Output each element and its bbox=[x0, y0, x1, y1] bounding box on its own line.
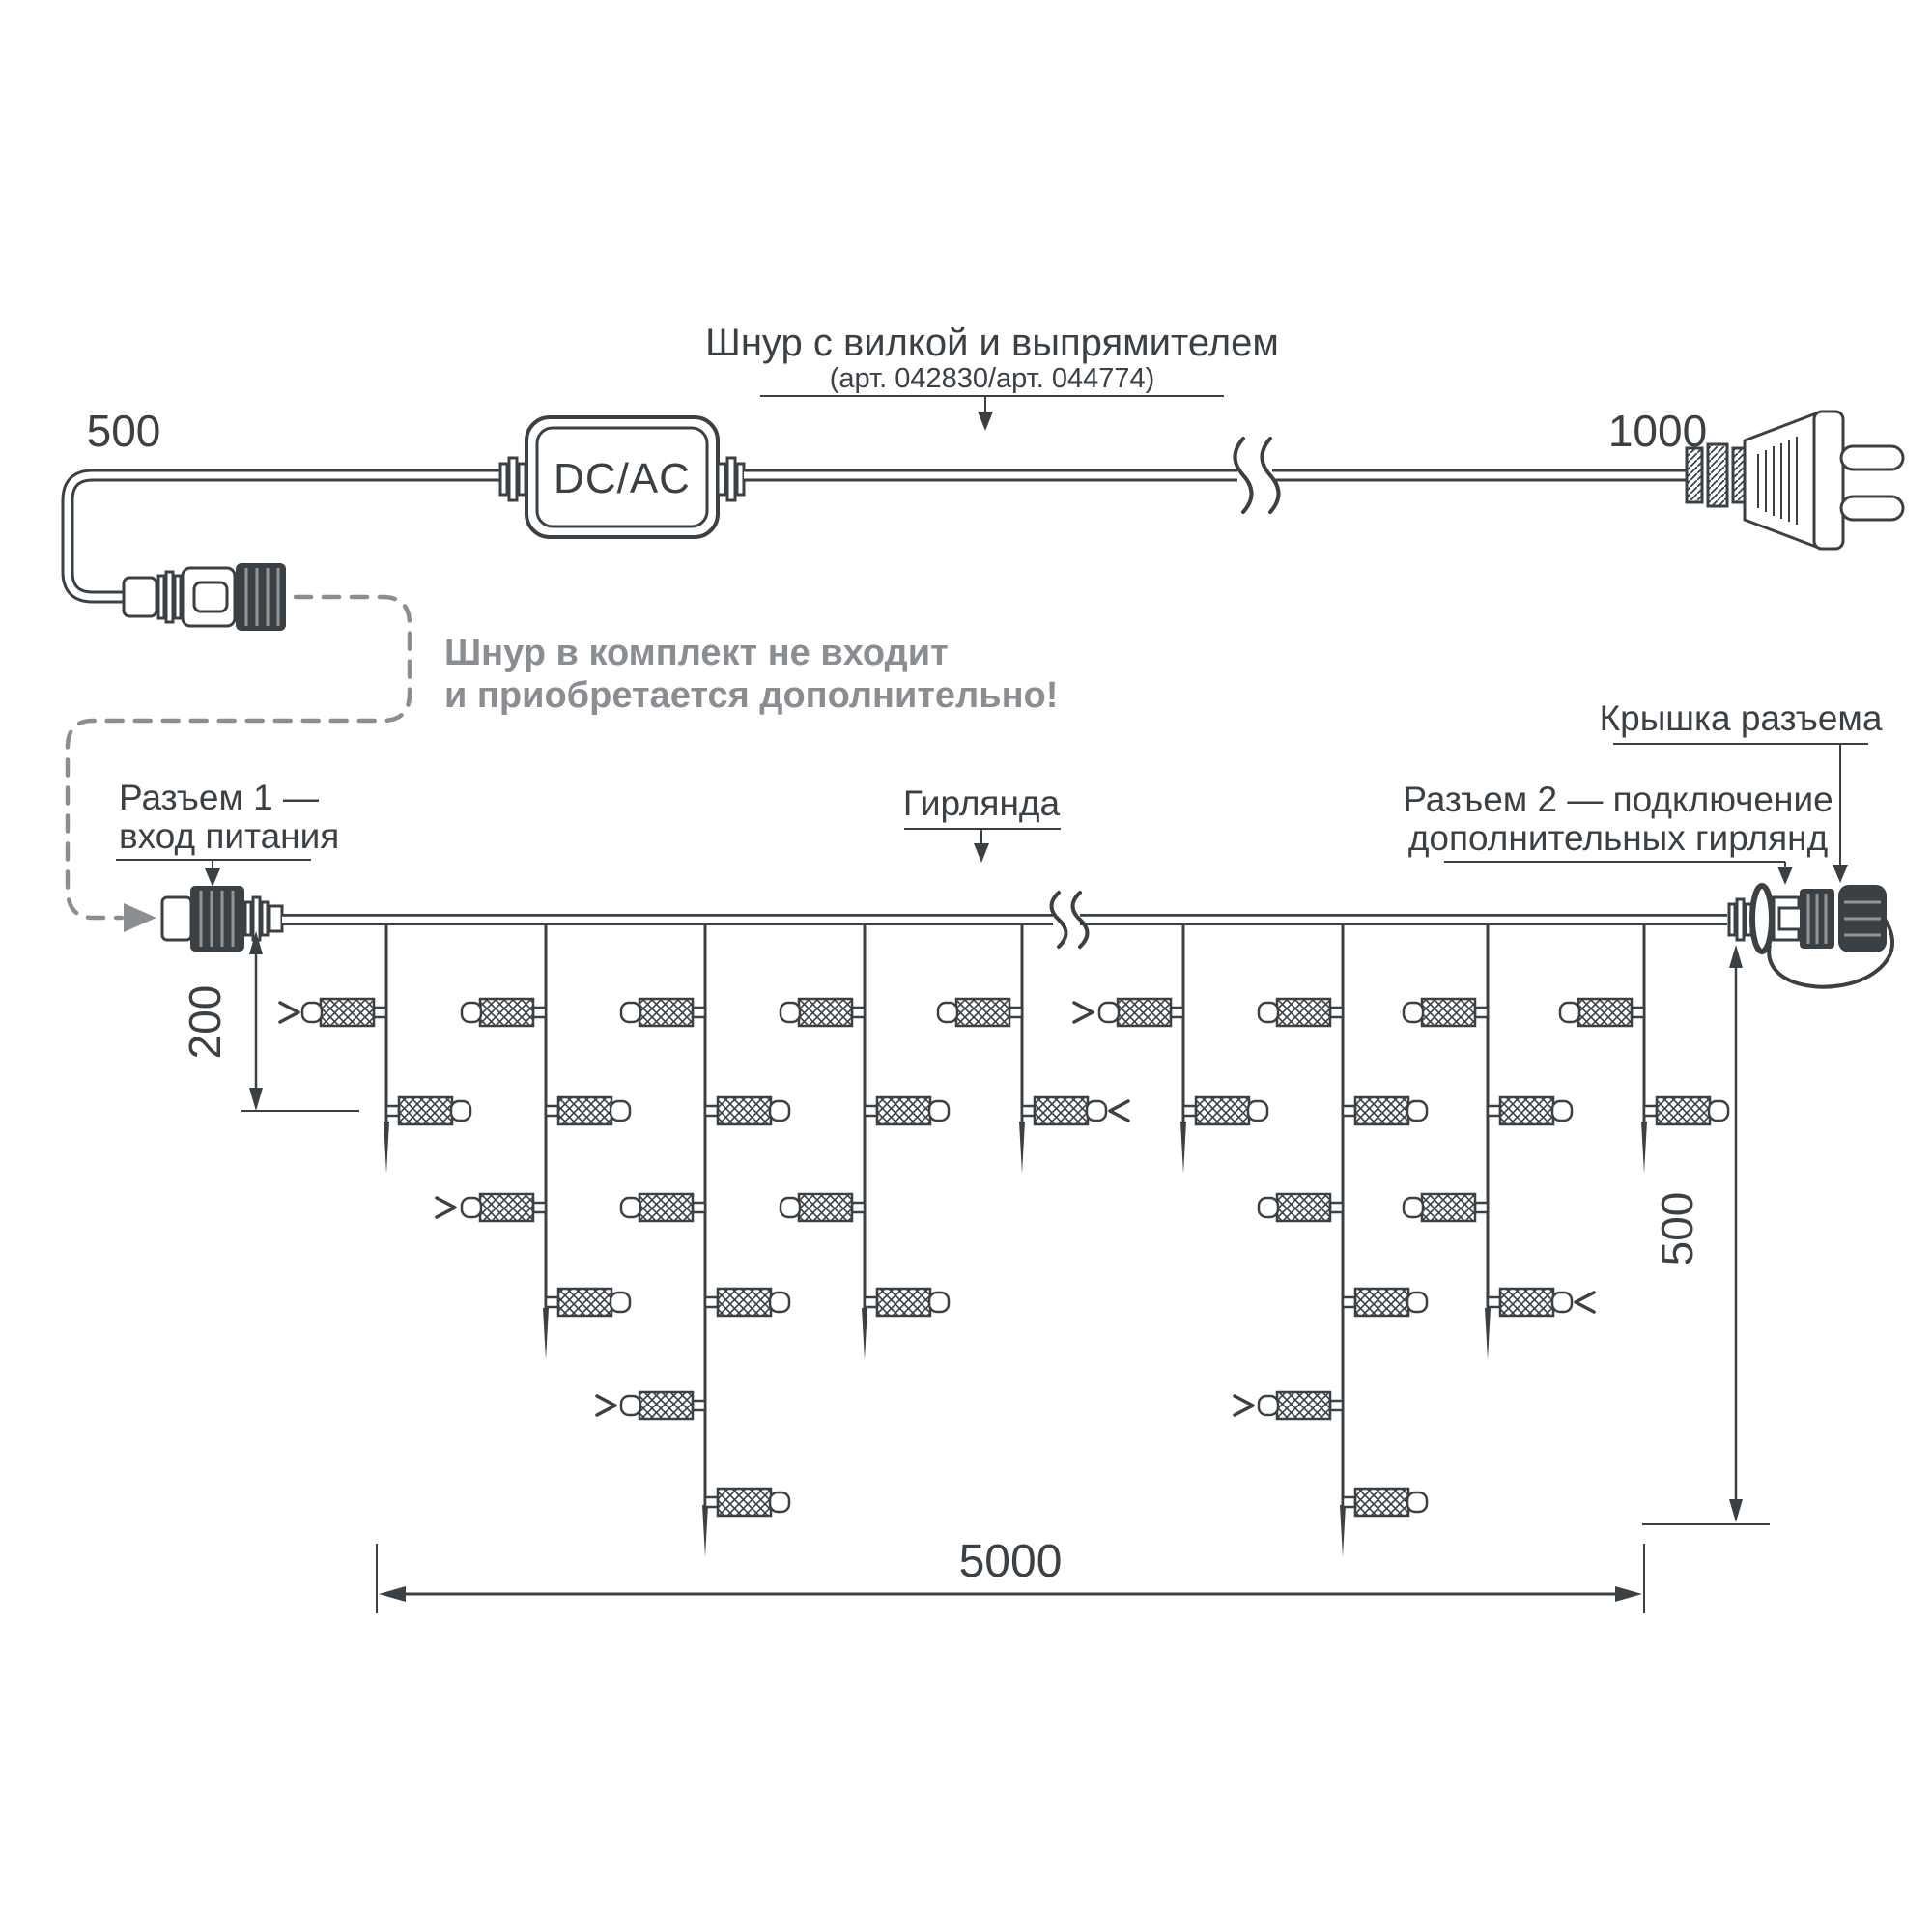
led-bulb bbox=[1099, 999, 1183, 1026]
plug-pin bbox=[1841, 446, 1903, 469]
icicle-strand bbox=[462, 923, 630, 1360]
connector1-label-line2: вход питания bbox=[119, 816, 339, 856]
power-plug bbox=[1687, 412, 1903, 549]
led-bulb bbox=[1488, 1289, 1572, 1316]
led-bulb bbox=[546, 1097, 630, 1124]
garland-label: Гирлянда bbox=[903, 783, 1061, 863]
led-bulb bbox=[1488, 1097, 1572, 1124]
led-bulb bbox=[546, 1289, 630, 1316]
bulb-pointer-icon bbox=[1074, 1003, 1093, 1022]
icicle-strand bbox=[1404, 923, 1572, 1360]
led-bulb bbox=[302, 999, 386, 1026]
title-arrow-icon bbox=[978, 412, 993, 431]
icicle-strand bbox=[1099, 923, 1267, 1174]
cord-title: Шнур с вилкой и выпрямителем bbox=[705, 322, 1279, 364]
led-bulb bbox=[781, 1194, 865, 1221]
icicle-strand bbox=[781, 923, 949, 1360]
led-bulb bbox=[705, 1097, 789, 1124]
cord-connector bbox=[124, 564, 285, 630]
icicle-strands bbox=[280, 923, 1728, 1557]
led-bulb bbox=[621, 999, 705, 1026]
connector1-arrow-icon bbox=[205, 868, 220, 887]
connector1-label-line1: Разъем 1 — bbox=[119, 778, 319, 817]
plug-pin bbox=[1841, 497, 1903, 520]
led-bulb bbox=[1343, 1289, 1427, 1316]
cord-left-length: 500 bbox=[87, 406, 161, 456]
power-cord-1000 bbox=[744, 439, 1687, 512]
bulb-pointer-icon bbox=[1576, 1293, 1594, 1312]
led-bulb bbox=[1644, 1097, 1728, 1124]
diagram-page: Шнур с вилкой и выпрямителем (арт. 04283… bbox=[0, 0, 1932, 1932]
connector2-label-line1: Разъем 2 — подключение bbox=[1403, 780, 1833, 819]
led-bulb bbox=[865, 1289, 949, 1316]
dashed-arrow-icon bbox=[124, 903, 156, 932]
dimension-5000: 5000 bbox=[377, 1536, 1644, 1613]
icicle-strand bbox=[938, 923, 1106, 1174]
cord-subtitle: (арт. 042830/арт. 044774) bbox=[830, 363, 1155, 394]
icicle-strand bbox=[1560, 923, 1728, 1174]
garland-label-text: Гирлянда bbox=[903, 783, 1061, 823]
garland-wiring-diagram: Шнур с вилкой и выпрямителем (арт. 04283… bbox=[0, 0, 1932, 1932]
led-bulb bbox=[386, 1097, 470, 1124]
bulb-pointer-icon bbox=[280, 1003, 298, 1022]
connector-cap bbox=[1839, 886, 1886, 952]
garland-arrow-icon bbox=[974, 843, 989, 863]
bulb-pointer-icon bbox=[1110, 1101, 1128, 1121]
led-bulb bbox=[1183, 1097, 1267, 1124]
led-bulb bbox=[1404, 1194, 1488, 1221]
led-bulb bbox=[1404, 999, 1488, 1026]
led-bulb bbox=[462, 1194, 546, 1221]
bulb-pointer-icon bbox=[437, 1198, 455, 1217]
led-bulb bbox=[938, 999, 1022, 1026]
wire-break-icon bbox=[1052, 893, 1066, 947]
cord-break-icon bbox=[1236, 439, 1252, 512]
led-bulb bbox=[1022, 1097, 1106, 1124]
dim-5000-text: 5000 bbox=[959, 1536, 1063, 1587]
led-bulb bbox=[1343, 1489, 1427, 1516]
dc-ac-label: DC/AC bbox=[554, 455, 691, 502]
icicle-strand bbox=[302, 923, 470, 1174]
led-bulb bbox=[1259, 1392, 1343, 1419]
note-line-1: Шнур в комплект не входит bbox=[444, 633, 949, 673]
bulb-pointer-icon bbox=[1235, 1396, 1253, 1415]
dc-ac-converter: DC/AC bbox=[500, 417, 744, 537]
connector1-label: Разъем 1 — вход питания bbox=[116, 778, 339, 887]
led-bulb bbox=[621, 1194, 705, 1221]
bulb-pointer-icon bbox=[597, 1396, 615, 1415]
led-bulb bbox=[462, 999, 546, 1026]
led-bulb bbox=[705, 1489, 789, 1516]
connector2-label-line2: дополнительных гирлянд bbox=[1408, 818, 1828, 858]
dim-200-text: 200 bbox=[180, 985, 230, 1060]
led-bulb bbox=[705, 1289, 789, 1316]
note-line-2: и приобретается дополнительно! bbox=[444, 675, 1058, 716]
note-text: Шнур в комплект не входит и приобретаетс… bbox=[444, 633, 1058, 716]
cap-arrow-icon bbox=[1833, 865, 1848, 883]
connector2-arrow-icon bbox=[1777, 867, 1793, 885]
cord-title-block: Шнур с вилкой и выпрямителем (арт. 04283… bbox=[705, 322, 1279, 431]
cap-label-text: Крышка разъема bbox=[1600, 698, 1883, 738]
led-bulb bbox=[865, 1097, 949, 1124]
led-bulb bbox=[1560, 999, 1644, 1026]
dashed-route bbox=[68, 597, 410, 932]
connector2-label: Разъем 2 — подключение дополнительных ги… bbox=[1403, 780, 1833, 885]
led-bulb bbox=[621, 1392, 705, 1419]
led-bulb bbox=[1259, 1194, 1343, 1221]
led-bulb bbox=[781, 999, 865, 1026]
garland-wire bbox=[282, 893, 1727, 947]
icicle-strand bbox=[621, 923, 789, 1557]
led-bulb bbox=[1343, 1097, 1427, 1124]
dim-500-text: 500 bbox=[1652, 1192, 1702, 1266]
dimension-500: 500 bbox=[1642, 945, 1770, 1524]
icicle-strand bbox=[1259, 923, 1427, 1557]
led-bulb bbox=[1259, 999, 1343, 1026]
connector-1 bbox=[162, 887, 282, 951]
